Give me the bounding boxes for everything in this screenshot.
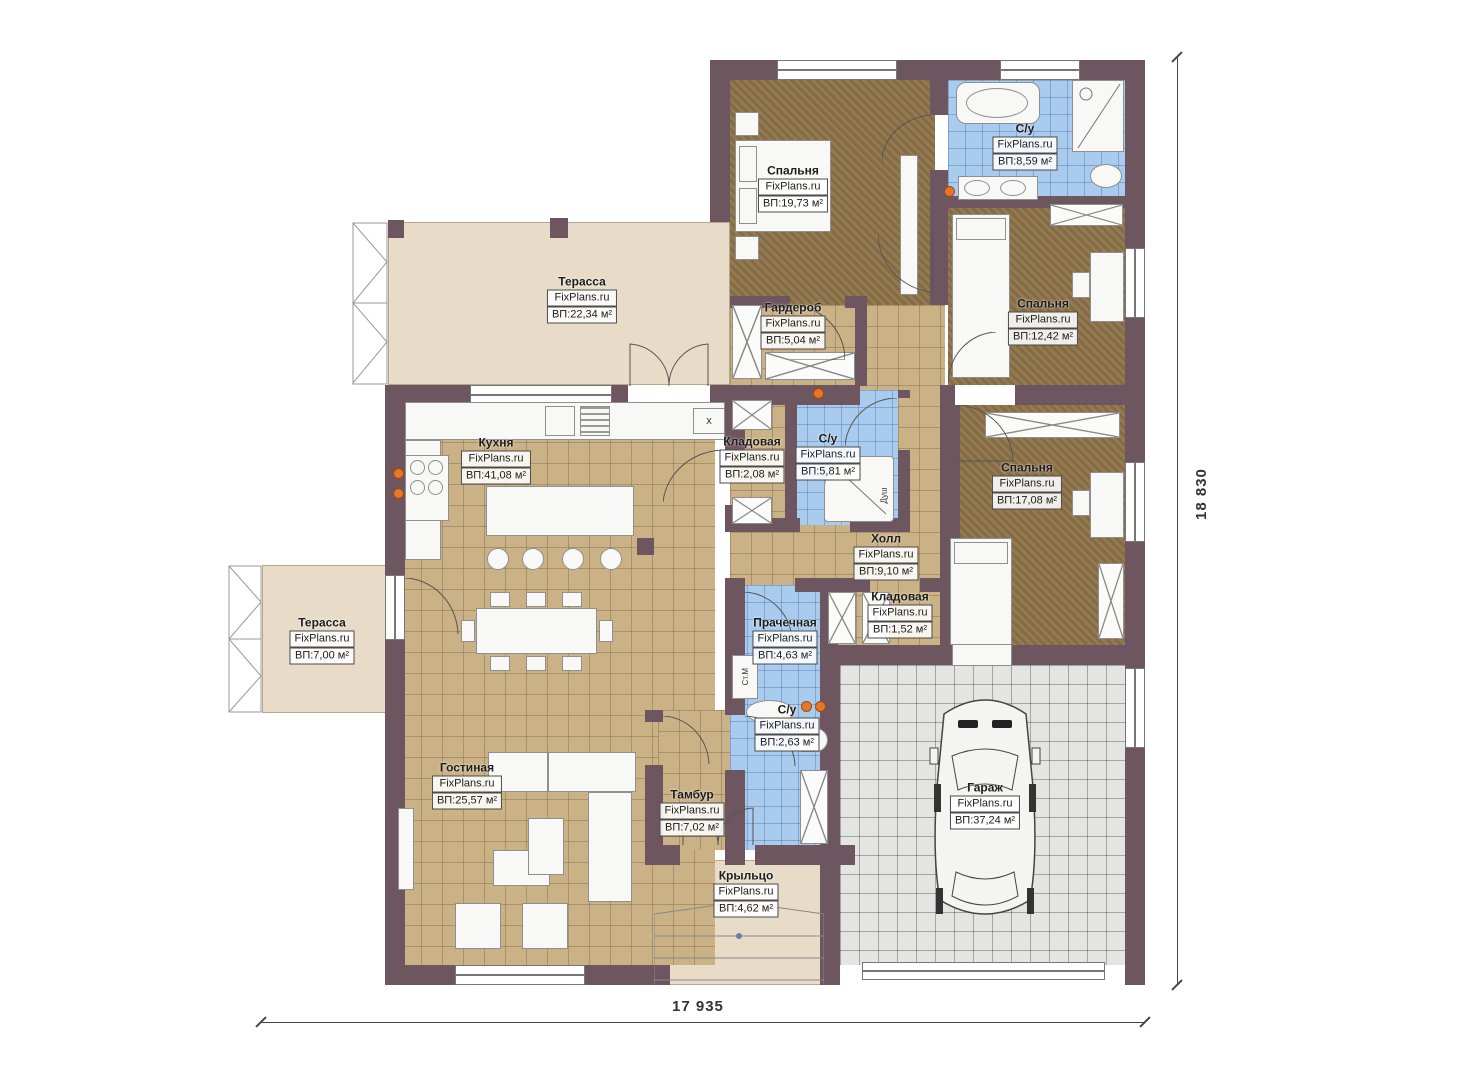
bar-stool xyxy=(487,548,509,570)
kitchen-hood: x xyxy=(693,408,725,434)
wall xyxy=(645,845,680,865)
watermark: FixPlans.ru xyxy=(754,718,819,735)
door-opening xyxy=(628,387,710,403)
window xyxy=(777,60,897,80)
room-area: ВП:7,00 м² xyxy=(289,648,354,665)
wall xyxy=(898,450,910,520)
armchair xyxy=(455,903,501,949)
room-area: ВП:7,02 м² xyxy=(659,820,724,837)
room-label-living: Гостиная FixPlans.ru ВП:25,57 м² xyxy=(432,761,502,810)
dining-table xyxy=(476,608,597,654)
room-area: ВП:17,08 м² xyxy=(992,493,1062,510)
room-label-kitchen: Кухня FixPlans.ru ВП:41,08 м² xyxy=(461,436,531,485)
nightstand xyxy=(735,236,759,260)
door-arc xyxy=(948,332,998,384)
window xyxy=(1125,462,1145,542)
wall xyxy=(1015,385,1145,405)
tv-unit xyxy=(398,808,414,890)
watermark: FixPlans.ru xyxy=(752,631,817,648)
terrace-post xyxy=(550,218,568,238)
watermark: FixPlans.ru xyxy=(795,447,860,464)
watermark: FixPlans.ru xyxy=(659,803,724,820)
room-name: Спальня xyxy=(992,461,1062,475)
dining-chair xyxy=(562,592,582,607)
kitchen-sink xyxy=(545,406,575,436)
wardrobe-closet xyxy=(732,305,762,379)
room-name: Спальня xyxy=(758,164,828,178)
room-label-bath-main: С/у FixPlans.ru ВП:8,59 м² xyxy=(992,122,1057,171)
desk xyxy=(1090,252,1124,322)
room-area: ВП:19,73 м² xyxy=(758,196,828,213)
armchair xyxy=(522,903,568,949)
room-name: Спальня xyxy=(1008,297,1078,311)
sink xyxy=(1000,180,1026,196)
wall xyxy=(385,385,405,575)
terrace-post xyxy=(388,220,404,238)
bed-pillow xyxy=(954,542,1008,564)
room-label-bedroom-2: Спальня FixPlans.ru ВП:12,42 м² xyxy=(1008,297,1078,346)
toilet xyxy=(1090,164,1122,188)
room-label-bath-3: С/у FixPlans.ru ВП:2,63 м² xyxy=(754,703,819,752)
coffee-table xyxy=(528,818,564,875)
room-area: ВП:2,63 м² xyxy=(754,735,819,752)
dining-chair xyxy=(526,592,546,607)
room-name: С/у xyxy=(992,122,1057,136)
dining-chair xyxy=(490,656,510,671)
room-name: Крыльцо xyxy=(713,869,778,883)
room-area: ВП:37,24 м² xyxy=(950,813,1020,830)
wall xyxy=(710,60,730,222)
room-area: ВП:25,57 м² xyxy=(432,793,502,810)
watermark: FixPlans.ru xyxy=(547,290,617,307)
wardrobe-closet xyxy=(1050,204,1123,226)
dimension-height: 18 830 xyxy=(1193,468,1210,520)
terrace-door xyxy=(385,575,405,640)
burner xyxy=(428,480,443,495)
room-name: Холл xyxy=(853,532,918,546)
wall xyxy=(1010,645,1125,665)
dimension-line-right xyxy=(1177,58,1178,985)
bathtub-basin xyxy=(966,88,1028,118)
room-name: Прачечная xyxy=(752,616,817,630)
watermark: FixPlans.ru xyxy=(853,547,918,564)
wall xyxy=(940,385,955,405)
watermark: FixPlans.ru xyxy=(713,884,778,901)
door-arc xyxy=(405,578,460,636)
room-area: ВП:4,63 м² xyxy=(752,648,817,665)
washing-machine-label: Ст.М xyxy=(741,668,750,685)
wall xyxy=(845,296,855,308)
room-name: Гараж xyxy=(950,781,1020,795)
terrace-ramp xyxy=(352,222,388,385)
room-label-tambour: Тамбур FixPlans.ru ВП:7,02 м² xyxy=(659,788,724,837)
room-name: Кладовая xyxy=(719,435,784,449)
watermark: FixPlans.ru xyxy=(719,450,784,467)
room-area: ВП:4,62 м² xyxy=(713,901,778,918)
wall xyxy=(930,80,948,115)
room-area: ВП:9,10 м² xyxy=(853,564,918,581)
room-name: С/у xyxy=(795,432,860,446)
sofa xyxy=(588,792,632,902)
room-name: Кухня xyxy=(461,436,531,450)
watermark: FixPlans.ru xyxy=(1008,312,1078,329)
watermark: FixPlans.ru xyxy=(760,316,825,333)
room-label-pantry-2: Кладовая FixPlans.ru ВП:1,52 м² xyxy=(867,590,932,639)
door-arc xyxy=(663,450,725,508)
room-area: ВП:8,59 м² xyxy=(992,154,1057,171)
door-arc xyxy=(878,232,934,294)
wall xyxy=(645,710,663,722)
shower-glass xyxy=(1072,80,1124,152)
door-arc xyxy=(628,302,710,386)
room-label-garage: Гараж FixPlans.ru ВП:37,24 м² xyxy=(950,781,1020,830)
kitchen-island xyxy=(486,486,634,536)
wall xyxy=(755,845,855,865)
dining-chair xyxy=(490,592,510,607)
window xyxy=(1000,60,1080,80)
room-label-porch: Крыльцо FixPlans.ru ВП:4,62 м² xyxy=(713,869,778,918)
room-area: ВП:5,81 м² xyxy=(795,464,860,481)
watermark: FixPlans.ru xyxy=(950,796,1020,813)
sofa xyxy=(548,752,636,792)
chair xyxy=(1072,272,1090,298)
watermark: FixPlans.ru xyxy=(758,179,828,196)
room-label-bedroom-3: Спальня FixPlans.ru ВП:17,08 м² xyxy=(992,461,1062,510)
room-name: Гостиная xyxy=(432,761,502,775)
room-name: Терасса xyxy=(289,616,354,630)
bed-pillow xyxy=(739,188,757,224)
room-label-laundry: Прачечная FixPlans.ru ВП:4,63 м² xyxy=(752,616,817,665)
dimension-line-bottom xyxy=(260,1022,1145,1023)
pantry-shelf xyxy=(732,497,772,524)
wall xyxy=(725,578,745,592)
wall xyxy=(855,296,867,386)
dining-chair xyxy=(461,620,475,642)
room-label-bath-2: С/у FixPlans.ru ВП:5,81 м² xyxy=(795,432,860,481)
bed-pillow xyxy=(956,218,1006,240)
room-name: Кладовая xyxy=(867,590,932,604)
cabinet xyxy=(800,770,828,844)
burner xyxy=(410,460,425,475)
bar-stool xyxy=(562,548,584,570)
door-arc xyxy=(663,716,711,766)
utility-marker xyxy=(393,468,404,479)
room-area: ВП:12,42 м² xyxy=(1008,329,1078,346)
window xyxy=(455,965,585,985)
bar-stool xyxy=(600,548,622,570)
watermark: FixPlans.ru xyxy=(992,137,1057,154)
shower-label: Душ xyxy=(880,487,889,508)
wall xyxy=(898,390,910,398)
bar-stool xyxy=(522,548,544,570)
window xyxy=(1125,668,1145,748)
room-area: ВП:1,52 м² xyxy=(867,622,932,639)
dining-chair xyxy=(526,656,546,671)
cabinet xyxy=(1098,563,1124,639)
room-area: ВП:2,08 м² xyxy=(719,467,784,484)
burner xyxy=(410,480,425,495)
utility-marker xyxy=(393,488,404,499)
watermark: FixPlans.ru xyxy=(432,776,502,793)
dining-chair xyxy=(599,620,613,642)
room-label-hall: Холл FixPlans.ru ВП:9,10 м² xyxy=(853,532,918,581)
wall xyxy=(385,640,405,965)
room-label-terrace-top: Терасса FixPlans.ru ВП:22,34 м² xyxy=(547,275,617,324)
shower-text: Душ xyxy=(880,487,889,503)
watermark: FixPlans.ru xyxy=(461,451,531,468)
watermark: FixPlans.ru xyxy=(867,605,932,622)
bed-pillow xyxy=(739,146,757,182)
dimension-width: 17 935 xyxy=(672,998,724,1015)
pantry-shelf xyxy=(732,400,772,430)
burner xyxy=(428,460,443,475)
room-area: ВП:22,34 м² xyxy=(547,307,617,324)
floor-plan: Душ x Ст.М xyxy=(0,0,1474,1080)
sink xyxy=(964,180,990,196)
hall-closet xyxy=(828,592,856,644)
window xyxy=(1125,248,1145,318)
room-area: ВП:5,04 м² xyxy=(760,333,825,350)
room-name: Тамбур xyxy=(659,788,724,802)
room-label-terrace-left: Терасса FixPlans.ru ВП:7,00 м² xyxy=(289,616,354,665)
dish-rack xyxy=(580,406,610,436)
room-area: ВП:41,08 м² xyxy=(461,468,531,485)
door-arc xyxy=(957,405,1015,463)
room-name: Терасса xyxy=(547,275,617,289)
wall xyxy=(385,965,455,985)
room-label-bedroom-1: Спальня FixPlans.ru ВП:19,73 м² xyxy=(758,164,828,213)
kitchen-column xyxy=(637,538,654,555)
utility-marker xyxy=(944,186,955,197)
door-arc xyxy=(882,115,930,170)
watermark: FixPlans.ru xyxy=(289,631,354,648)
room-label-pantry-1: Кладовая FixPlans.ru ВП:2,08 м² xyxy=(719,435,784,484)
chair xyxy=(1072,490,1090,516)
garage-gate xyxy=(862,962,1105,980)
room-name: Гардероб xyxy=(760,301,825,315)
watermark: FixPlans.ru xyxy=(992,476,1062,493)
room-name: С/у xyxy=(754,703,819,717)
terrace-ramp xyxy=(228,565,262,713)
dining-chair xyxy=(562,656,582,671)
nightstand xyxy=(735,112,759,136)
desk xyxy=(1090,472,1124,538)
room-label-wardrobe: Гардероб FixPlans.ru ВП:5,04 м² xyxy=(760,301,825,350)
utility-marker xyxy=(813,388,824,399)
wall xyxy=(840,645,955,665)
